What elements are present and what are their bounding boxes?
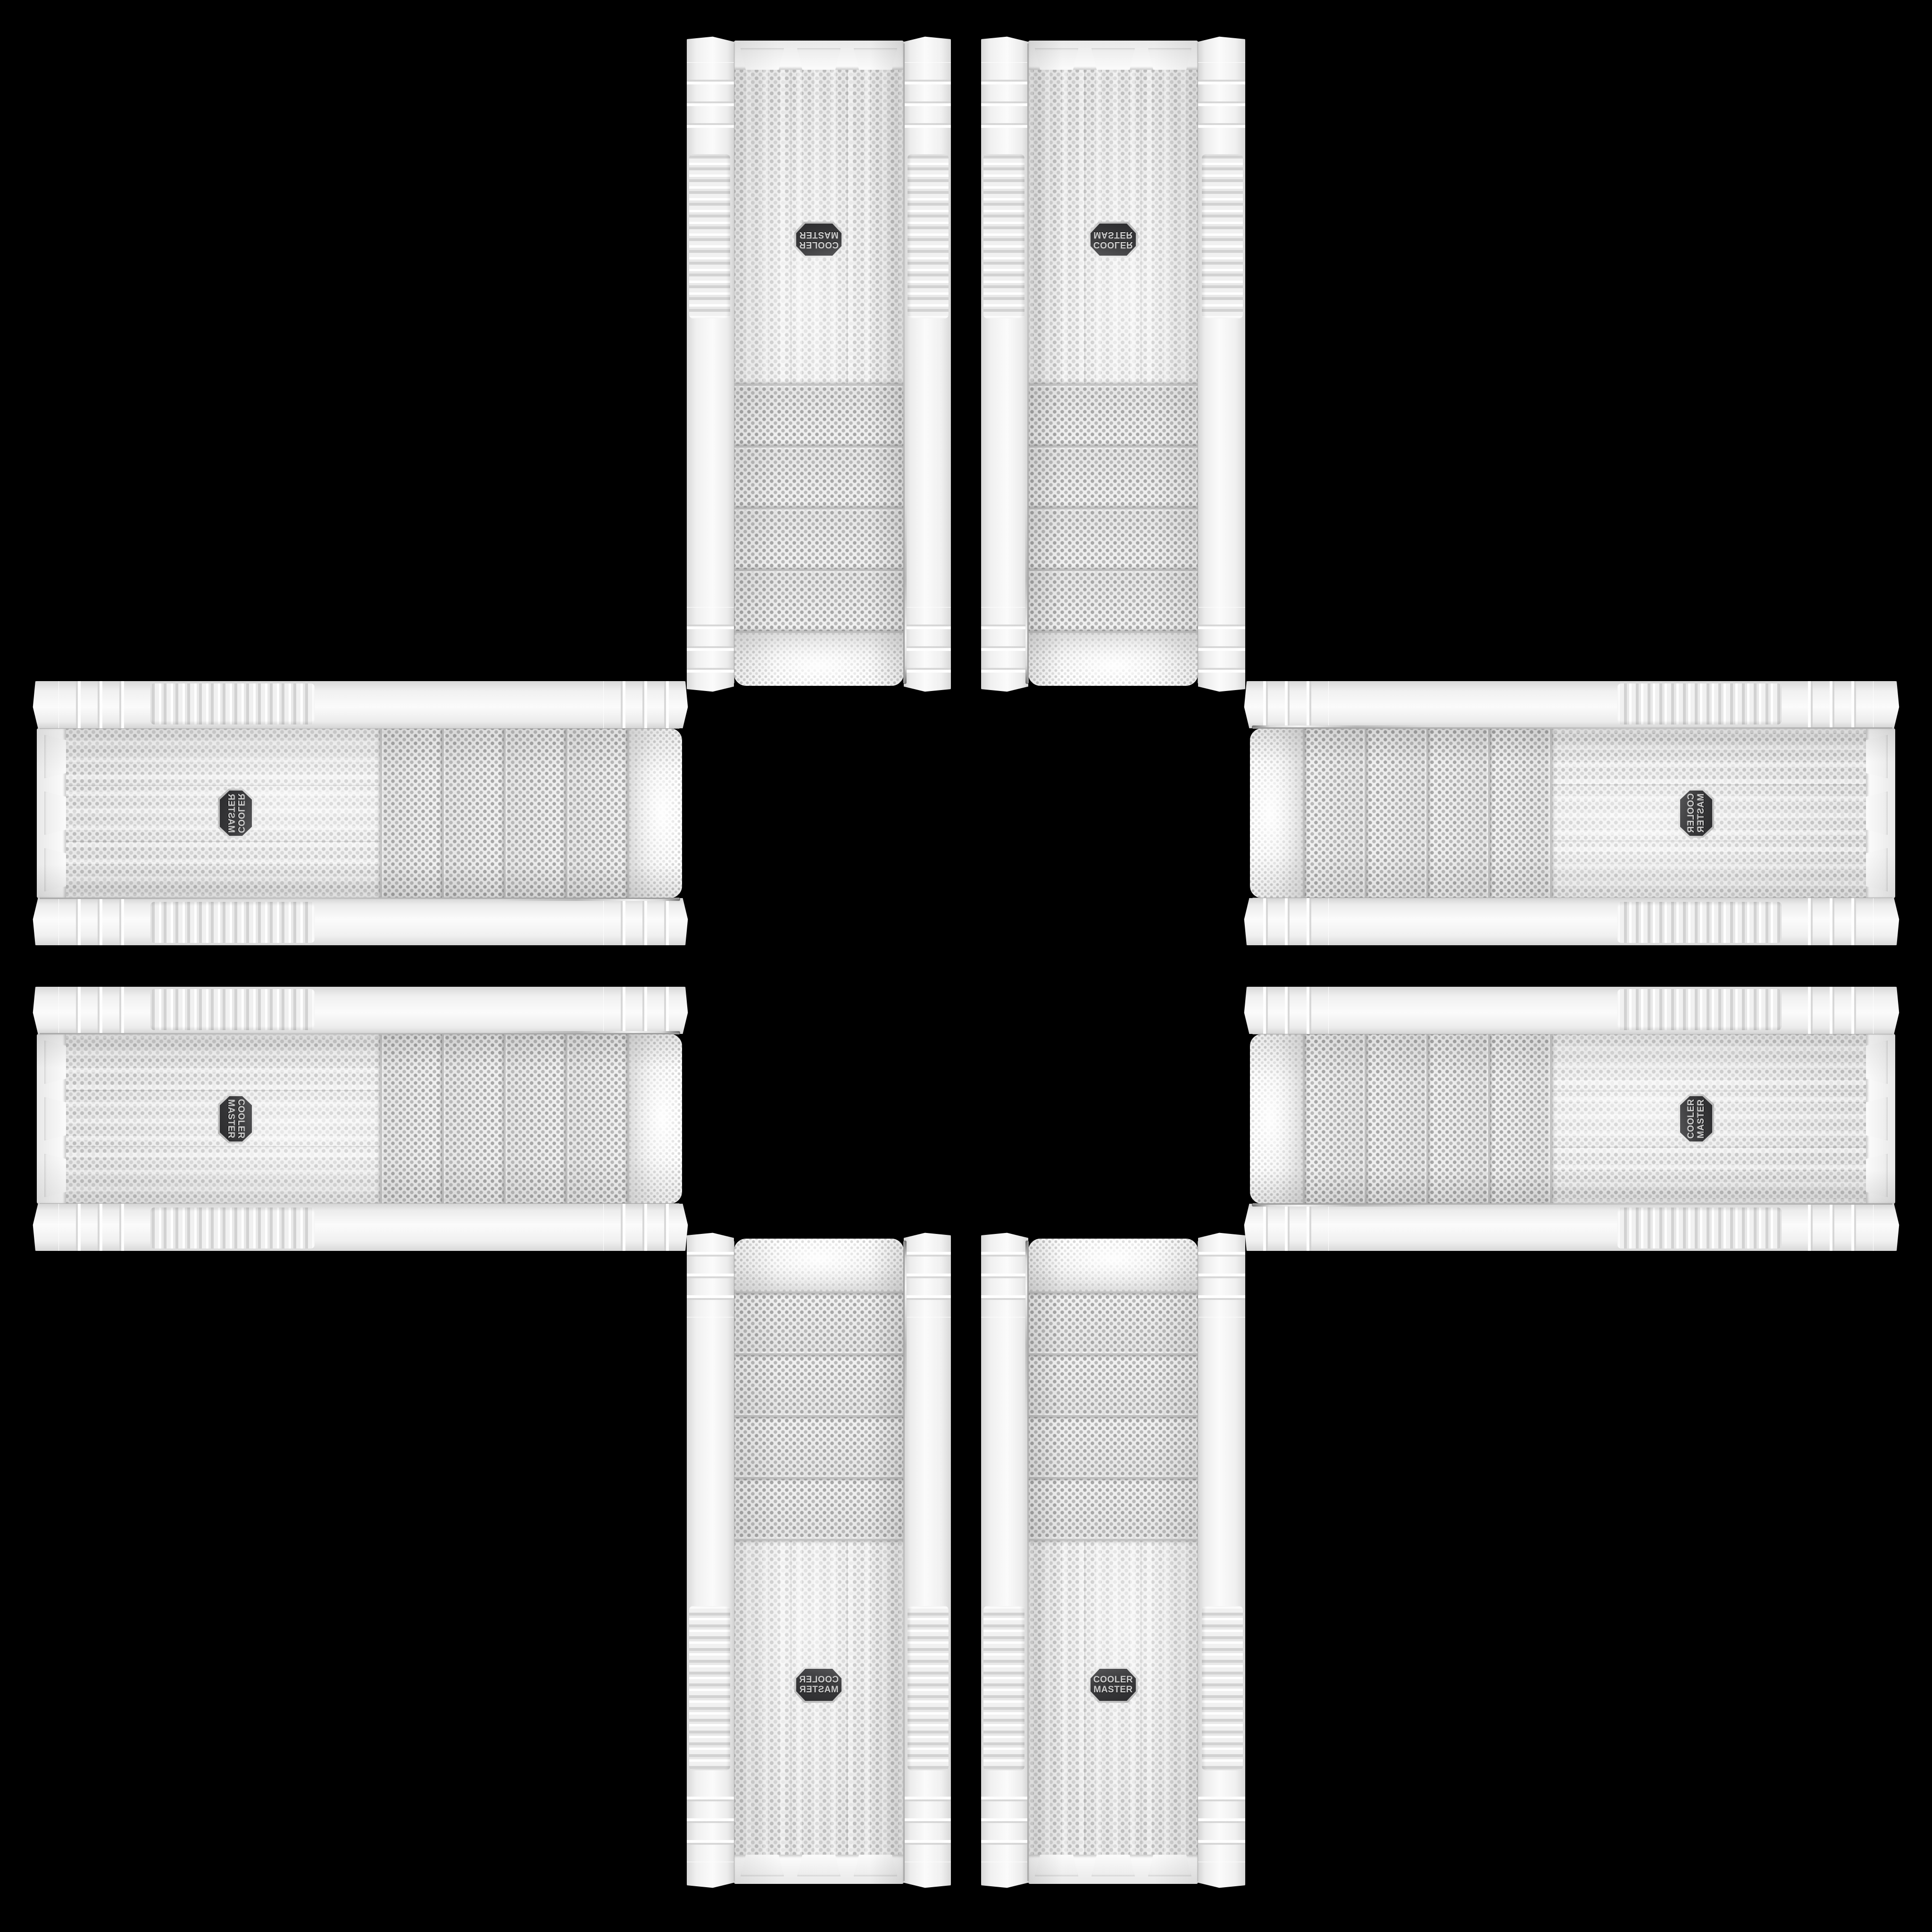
drive-bay-cover-2 — [1028, 1353, 1198, 1415]
drive-bay-cover-4 — [1488, 1034, 1550, 1204]
front-bottom-cap — [734, 41, 904, 70]
cap-tab — [854, 1855, 897, 1876]
mesh-panel-seam — [1141, 1541, 1141, 1855]
cap-tab — [797, 1855, 841, 1876]
stage: COOLER MASTER — [0, 0, 1932, 1932]
badge-face: COOLER MASTER — [1091, 1669, 1136, 1701]
rail-ridge-steps-bottom — [1198, 1797, 1245, 1862]
drive-bay-cover-2 — [1365, 1034, 1426, 1204]
rail-ridge-steps-bottom — [1808, 681, 1874, 728]
cooler-master-badge: COOLER MASTER — [218, 789, 254, 838]
front-top-mesh-curve — [629, 1034, 682, 1204]
mesh-panel-seam — [1552, 784, 1866, 785]
badge-text-line1: COOLER — [799, 1675, 839, 1685]
drive-bay-cover-1 — [734, 1291, 904, 1353]
rail-ridge-steps-bottom — [58, 987, 124, 1034]
drive-bay-cover-2 — [1365, 728, 1426, 898]
cap-tab — [1866, 791, 1888, 835]
rail-grip-ribs — [983, 1606, 1024, 1770]
drive-bay-cover-3 — [1028, 448, 1198, 509]
cap-tab — [741, 1855, 784, 1876]
front-bottom-cap — [37, 728, 66, 898]
cap-tab — [1091, 1855, 1135, 1876]
rail-ridge-steps-top — [687, 1252, 734, 1317]
drive-bay-cover-3 — [444, 1034, 506, 1204]
drive-bay-cover-3 — [1426, 1034, 1488, 1204]
badge-face: COOLER MASTER — [1680, 1096, 1712, 1141]
right-side-rail — [1198, 36, 1245, 692]
mesh-panel-seam — [847, 70, 848, 384]
badge-text-line1: COOLER — [799, 240, 839, 250]
drive-bay-cover-4 — [382, 1034, 444, 1204]
left-side-rail — [904, 1232, 951, 1889]
rail-ridge-steps-top — [603, 987, 669, 1034]
rail-grip-ribs — [689, 1606, 730, 1770]
badge-face: COOLER MASTER — [1091, 224, 1136, 256]
left-side-rail — [981, 36, 1028, 692]
rail-ridge-steps-top — [603, 681, 669, 728]
mesh-panel-seam — [66, 1090, 380, 1091]
badge-face: COOLER MASTER — [220, 791, 252, 836]
cap-tab — [797, 48, 841, 70]
badge-text-line1: COOLER — [1687, 793, 1696, 833]
mesh-panel-seam — [1141, 70, 1141, 384]
front-bottom-cap — [37, 1034, 66, 1204]
front-bottom-cap — [734, 1855, 904, 1884]
rail-ridge-steps-top — [687, 607, 734, 673]
rail-ridge-steps-bottom — [1808, 1204, 1874, 1251]
rail-grip-ribs — [1617, 1207, 1782, 1249]
right-side-rail — [1198, 1232, 1245, 1889]
drive-bay-cover-3 — [734, 1415, 904, 1477]
badge-face: COOLER MASTER — [796, 1669, 841, 1701]
pc-case-top-left: COOLER MASTER — [687, 36, 951, 692]
left-side-rail — [1243, 1204, 1900, 1251]
drive-bay-cover-1 — [567, 728, 629, 898]
cooler-master-badge: COOLER MASTER — [1089, 1667, 1138, 1703]
right-side-rail — [1243, 898, 1900, 945]
front-top-mesh-curve — [629, 728, 682, 898]
cap-tab — [44, 848, 66, 891]
cap-tab — [1035, 48, 1078, 70]
badge-text-line1: COOLER — [1093, 240, 1133, 250]
rail-ridge-steps-bottom — [1808, 987, 1874, 1034]
rail-ridge-steps-top — [1263, 681, 1329, 728]
cap-tab — [1148, 48, 1191, 70]
front-panel: COOLER MASTER — [37, 728, 682, 898]
drive-bay-cover-1 — [734, 571, 904, 633]
left-side-rail — [32, 898, 689, 945]
front-bottom-cap — [1028, 1855, 1198, 1884]
front-panel: COOLER MASTER — [734, 41, 904, 686]
badge-text-line2: MASTER — [799, 230, 838, 240]
cooler-master-badge: COOLER MASTER — [1089, 222, 1138, 258]
front-top-mesh-curve — [734, 633, 904, 686]
badge-text-line2: MASTER — [1093, 1685, 1133, 1695]
rail-ridge-steps-bottom — [687, 62, 734, 128]
badge-text-line1: COOLER — [1093, 1675, 1133, 1685]
drive-bay-cover-3 — [734, 448, 904, 509]
drive-bay-cover-2 — [734, 509, 904, 571]
pc-case-left-top: COOLER MASTER — [32, 681, 689, 945]
badge-face: COOLER MASTER — [1680, 791, 1712, 836]
rail-ridge-steps-bottom — [904, 1797, 951, 1862]
badge-text-line2: MASTER — [1697, 1099, 1706, 1138]
mesh-panel-seam — [1084, 70, 1085, 384]
rail-seam-left — [903, 1241, 905, 1881]
left-side-rail — [904, 36, 951, 692]
cap-tab — [1866, 1154, 1888, 1197]
rail-grip-ribs — [1617, 683, 1782, 724]
drive-bay-cover-1 — [567, 1034, 629, 1204]
cap-tab — [1035, 1855, 1078, 1876]
badge-face: COOLER MASTER — [220, 1096, 252, 1141]
rail-grip-ribs — [150, 989, 315, 1030]
mesh-panel-seam — [1084, 1541, 1085, 1855]
front-panel: COOLER MASTER — [1028, 1239, 1198, 1884]
drive-bay-cover-1 — [1028, 571, 1198, 633]
cap-tab — [1091, 48, 1135, 70]
front-top-mesh-curve — [734, 1239, 904, 1291]
front-bottom-cap — [1866, 1034, 1895, 1204]
front-panel: COOLER MASTER — [734, 1239, 904, 1884]
mesh-panel-seam — [66, 841, 380, 842]
cooler-master-badge: COOLER MASTER — [1678, 1094, 1714, 1143]
rail-grip-ribs — [689, 154, 730, 318]
rail-ridge-steps-bottom — [58, 1204, 124, 1251]
rail-grip-ribs — [908, 1606, 949, 1770]
pc-case-left-bottom: COOLER MASTER — [32, 987, 689, 1251]
badge-text-line2: MASTER — [226, 793, 236, 833]
rail-ridge-steps-bottom — [687, 1797, 734, 1862]
mesh-panel-seam — [66, 1146, 380, 1147]
rail-seam-left — [903, 43, 905, 683]
badge-text-line2: MASTER — [226, 1099, 236, 1138]
rail-grip-ribs — [150, 683, 315, 724]
cap-tab — [44, 1041, 66, 1084]
right-side-rail — [687, 36, 734, 692]
pc-case-top-right: COOLER MASTER — [981, 36, 1245, 692]
rail-ridge-steps-bottom — [58, 681, 124, 728]
drive-bay-cover-1 — [1303, 728, 1365, 898]
mesh-panel-seam — [1552, 1091, 1866, 1091]
mesh-panel-seam — [1552, 1147, 1866, 1148]
drive-bay-cover-4 — [734, 1477, 904, 1539]
rail-seam-left — [1027, 1241, 1029, 1881]
rail-grip-ribs — [1617, 989, 1782, 1030]
left-side-rail — [1243, 681, 1900, 728]
mesh-panel-seam — [847, 1541, 848, 1855]
right-side-rail — [32, 1204, 689, 1251]
drive-bay-cover-4 — [1488, 728, 1550, 898]
cooler-master-badge: COOLER MASTER — [218, 1094, 254, 1143]
pc-case-right-bottom: COOLER MASTER — [1243, 987, 1900, 1251]
cap-tab — [1866, 1041, 1888, 1084]
drive-bay-cover-2 — [1028, 509, 1198, 571]
pc-case-bottom-left: COOLER MASTER — [687, 1232, 951, 1889]
rail-seam-left — [40, 1033, 679, 1034]
pc-case-right-top: COOLER MASTER — [1243, 681, 1900, 945]
mesh-panel-seam — [791, 1541, 791, 1855]
right-side-rail — [687, 1232, 734, 1889]
rail-grip-ribs — [150, 1207, 315, 1249]
rail-ridge-steps-top — [603, 1204, 669, 1251]
badge-text-line2: MASTER — [1093, 230, 1133, 240]
front-bottom-cap — [1028, 41, 1198, 70]
front-panel: COOLER MASTER — [37, 1034, 682, 1204]
badge-text-line2: MASTER — [799, 1685, 838, 1695]
rail-ridge-steps-top — [981, 1252, 1028, 1317]
rail-ridge-steps-top — [1263, 1204, 1329, 1251]
drive-bay-cover-4 — [734, 386, 904, 448]
badge-face: COOLER MASTER — [796, 224, 841, 256]
rail-ridge-steps-top — [981, 607, 1028, 673]
front-top-mesh-curve — [1250, 728, 1303, 898]
drive-bay-cover-3 — [1028, 1415, 1198, 1477]
drive-bay-cover-1 — [1303, 1034, 1365, 1204]
rail-ridge-steps-bottom — [981, 62, 1028, 128]
rail-grip-ribs — [1202, 154, 1243, 318]
rail-ridge-steps-top — [904, 1252, 951, 1317]
left-side-rail — [32, 987, 689, 1034]
rail-seam-left — [1027, 43, 1029, 683]
cap-tab — [1866, 735, 1888, 778]
rail-ridge-steps-top — [1263, 898, 1329, 945]
badge-text-line2: MASTER — [1697, 793, 1706, 833]
front-panel: COOLER MASTER — [1250, 1034, 1895, 1204]
rail-seam-left — [1253, 1203, 1892, 1205]
rail-ridge-steps-top — [603, 898, 669, 945]
rail-ridge-steps-bottom — [981, 1797, 1028, 1862]
right-side-rail — [32, 681, 689, 728]
badge-text-line1: COOLER — [1687, 1099, 1696, 1139]
drive-bay-cover-3 — [444, 728, 506, 898]
rail-ridge-steps-top — [1263, 987, 1329, 1034]
cap-tab — [1866, 1097, 1888, 1141]
cap-tab — [44, 791, 66, 835]
cap-tab — [854, 48, 897, 70]
rail-grip-ribs — [150, 902, 315, 943]
pc-case-bottom-right: COOLER MASTER — [981, 1232, 1245, 1889]
mesh-panel-seam — [791, 70, 791, 384]
cooler-master-badge: COOLER MASTER — [1678, 789, 1714, 838]
cap-tab — [1148, 1855, 1191, 1876]
mesh-panel-seam — [1552, 841, 1866, 841]
front-top-mesh-curve — [1028, 633, 1198, 686]
rail-ridge-steps-bottom — [904, 62, 951, 128]
rail-grip-ribs — [1202, 1606, 1243, 1770]
rail-ridge-steps-bottom — [1198, 62, 1245, 128]
rail-grip-ribs — [983, 154, 1024, 318]
front-top-mesh-curve — [1028, 1239, 1198, 1291]
rail-ridge-steps-bottom — [1808, 898, 1874, 945]
drive-bay-cover-2 — [506, 1034, 567, 1204]
rail-grip-ribs — [908, 154, 949, 318]
cap-tab — [741, 48, 784, 70]
cap-tab — [44, 1097, 66, 1141]
cooler-master-badge: COOLER MASTER — [794, 1667, 843, 1703]
front-bottom-cap — [1866, 728, 1895, 898]
cap-tab — [1866, 848, 1888, 891]
drive-bay-cover-2 — [734, 1353, 904, 1415]
rail-seam-left — [40, 898, 679, 899]
drive-bay-cover-1 — [1028, 1291, 1198, 1353]
rail-grip-ribs — [1617, 902, 1782, 943]
rail-ridge-steps-bottom — [58, 898, 124, 945]
drive-bay-cover-3 — [1426, 728, 1488, 898]
front-panel: COOLER MASTER — [1250, 728, 1895, 898]
rail-seam-left — [1253, 727, 1892, 729]
front-top-mesh-curve — [1250, 1034, 1303, 1204]
cap-tab — [44, 1154, 66, 1197]
rail-ridge-steps-top — [1198, 607, 1245, 673]
drive-bay-cover-4 — [1028, 386, 1198, 448]
drive-bay-cover-2 — [506, 728, 567, 898]
drive-bay-cover-4 — [1028, 1477, 1198, 1539]
rail-ridge-steps-top — [1198, 1252, 1245, 1317]
right-side-rail — [1243, 987, 1900, 1034]
mesh-panel-seam — [66, 785, 380, 786]
left-side-rail — [981, 1232, 1028, 1889]
drive-bay-cover-4 — [382, 728, 444, 898]
rail-ridge-steps-top — [904, 607, 951, 673]
cap-tab — [44, 735, 66, 778]
badge-text-line1: COOLER — [236, 1099, 246, 1139]
badge-text-line1: COOLER — [236, 793, 246, 833]
cooler-master-badge: COOLER MASTER — [794, 222, 843, 258]
front-panel: COOLER MASTER — [1028, 41, 1198, 686]
